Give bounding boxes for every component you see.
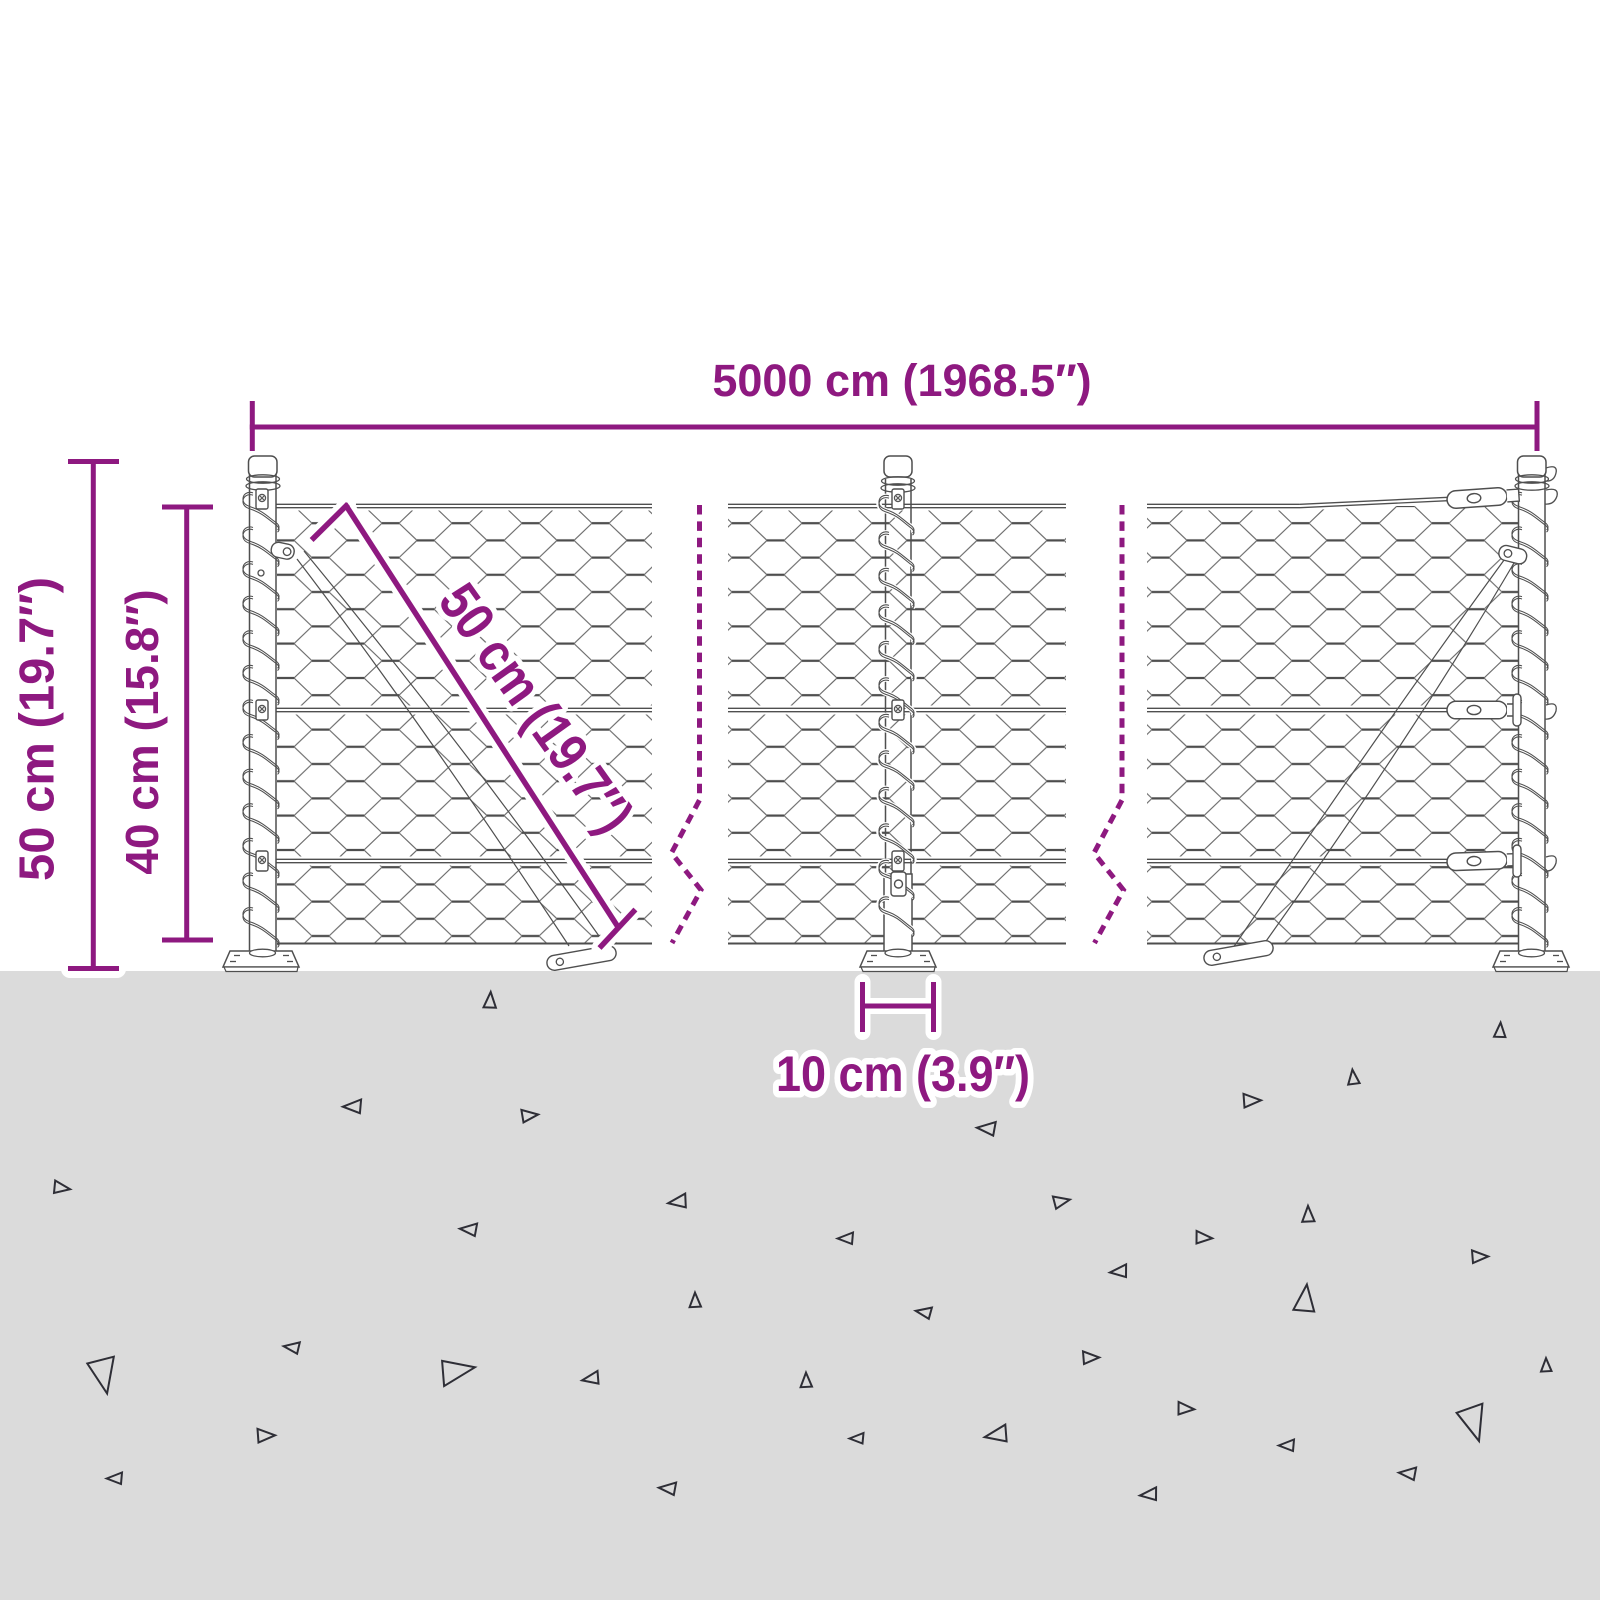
svg-text:10 cm (3.9″): 10 cm (3.9″): [776, 1047, 1030, 1103]
svg-text:40 cm (15.8″): 40 cm (15.8″): [116, 589, 168, 874]
svg-text:5000 cm (1968.5″): 5000 cm (1968.5″): [712, 355, 1091, 406]
svg-text:50 cm (19.7″): 50 cm (19.7″): [11, 577, 65, 881]
